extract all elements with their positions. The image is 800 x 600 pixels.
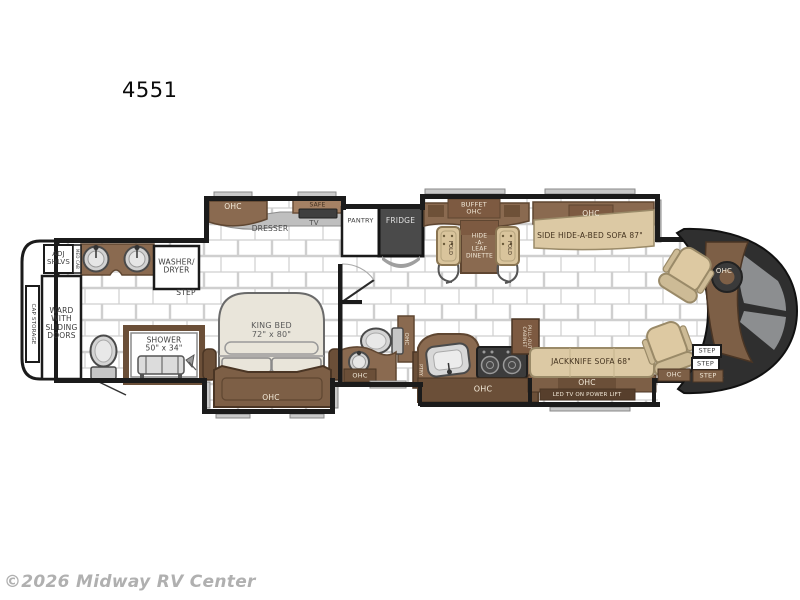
entry-step-box	[693, 345, 721, 357]
slide-rail	[425, 189, 505, 194]
bath-ohc-plate	[344, 369, 376, 382]
bed-foot-cabinet	[214, 366, 331, 407]
adj-shelves-box	[44, 245, 73, 273]
rv-floorplan-page: 4551 ADJ SHLVS MED CAB WASHER/ DRYER STE…	[0, 0, 800, 600]
entry-step-box	[692, 358, 719, 370]
jackknife-sofa	[530, 348, 654, 377]
model-number: 4551	[122, 78, 177, 102]
toilet-rear-icon	[91, 336, 117, 380]
rear-bath-door	[99, 382, 126, 395]
buffet-vent	[428, 205, 444, 217]
king-bed-slide	[203, 293, 342, 418]
led-tv-lift	[540, 389, 635, 400]
bedroom-ohc-cabinet	[209, 201, 267, 226]
buffet-ohc-plate	[448, 199, 500, 218]
cap-storage-box	[26, 286, 39, 362]
shower-stall	[126, 328, 202, 382]
floorplan-drawing	[0, 0, 800, 600]
kitchen-sink-icon	[425, 343, 470, 378]
slide-rail	[290, 414, 324, 418]
entry-step-box	[693, 370, 723, 382]
sink-right-icon	[125, 245, 150, 272]
washer-dryer-box	[154, 246, 199, 289]
slide-rail	[545, 189, 635, 194]
sink-left-icon	[84, 245, 109, 272]
tv-icon	[299, 209, 337, 218]
shower-bench-icon	[138, 356, 184, 374]
slide-rail	[550, 407, 630, 411]
front-ohc-plate	[658, 369, 690, 381]
med-cab-box	[73, 245, 81, 273]
dealer-watermark: ©2026 Midway RV Center	[4, 572, 256, 592]
slide-rail	[216, 414, 250, 418]
kitchen-lower-ohc	[418, 378, 538, 402]
wardrobe-box	[42, 276, 81, 379]
buffet-vent	[504, 205, 520, 217]
pantry-box	[342, 207, 379, 256]
